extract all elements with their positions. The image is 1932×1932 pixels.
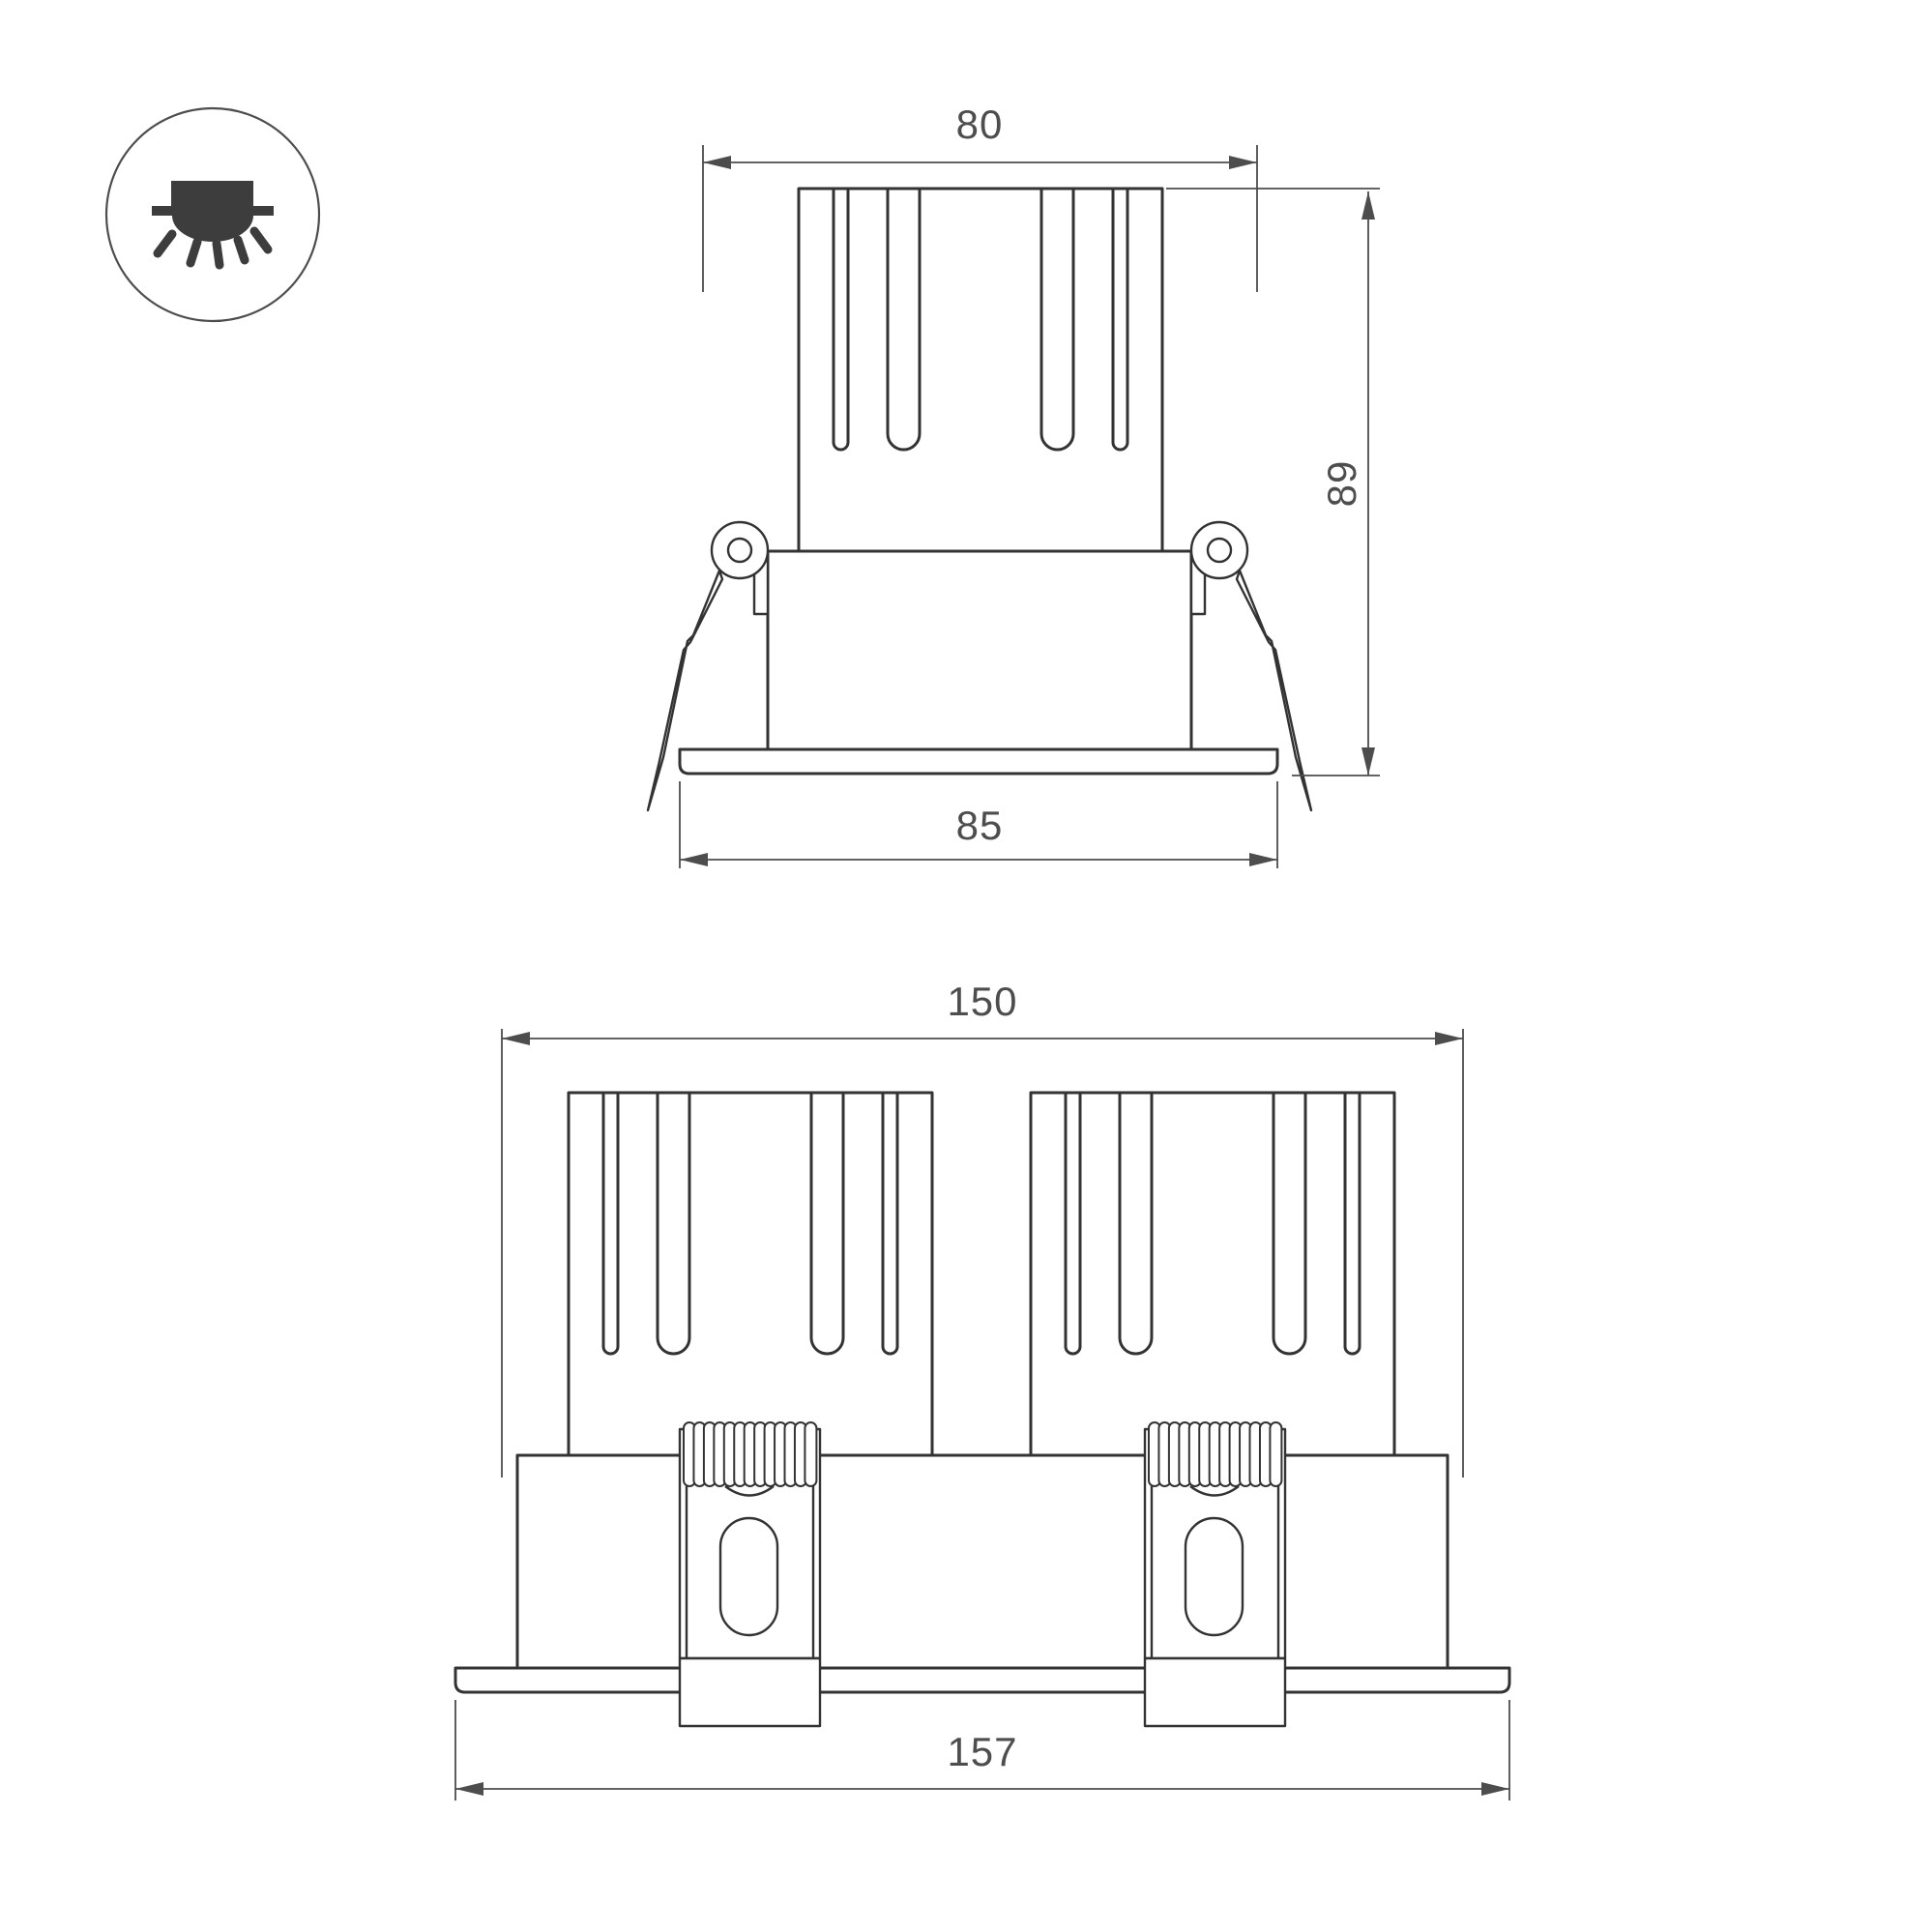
recessed-downlight-icon xyxy=(106,108,319,321)
heatsink-left xyxy=(569,1093,932,1455)
flange xyxy=(680,749,1277,774)
icon-lamp-body xyxy=(171,181,253,209)
technical-drawing: 80 89 85 150 xyxy=(0,0,1932,1932)
dim-height: 89 xyxy=(1166,189,1380,776)
dim-label-89: 89 xyxy=(1319,460,1364,508)
dim-label-85: 85 xyxy=(956,803,1004,848)
heatsink-right xyxy=(1031,1093,1394,1455)
dim-label-80: 80 xyxy=(956,102,1004,147)
icon-ceiling-trim xyxy=(152,206,274,216)
drawing-page: 80 89 85 150 xyxy=(0,0,1932,1932)
dim-flange-width: 85 xyxy=(680,781,1277,868)
dim-label-150: 150 xyxy=(947,979,1017,1024)
trim-body xyxy=(768,551,1191,749)
double-fixture-view: 150 157 xyxy=(455,979,1509,1800)
trim-body-double xyxy=(517,1455,1448,1668)
single-fixture-view: 80 89 85 xyxy=(648,102,1380,868)
flange-double xyxy=(455,1668,1509,1692)
terminal-connector-right xyxy=(1145,1422,1285,1726)
dim-flange-width-double: 157 xyxy=(455,1700,1509,1800)
dim-label-157: 157 xyxy=(947,1729,1017,1774)
terminal-connector-left xyxy=(680,1422,820,1726)
heatsink xyxy=(799,189,1162,551)
